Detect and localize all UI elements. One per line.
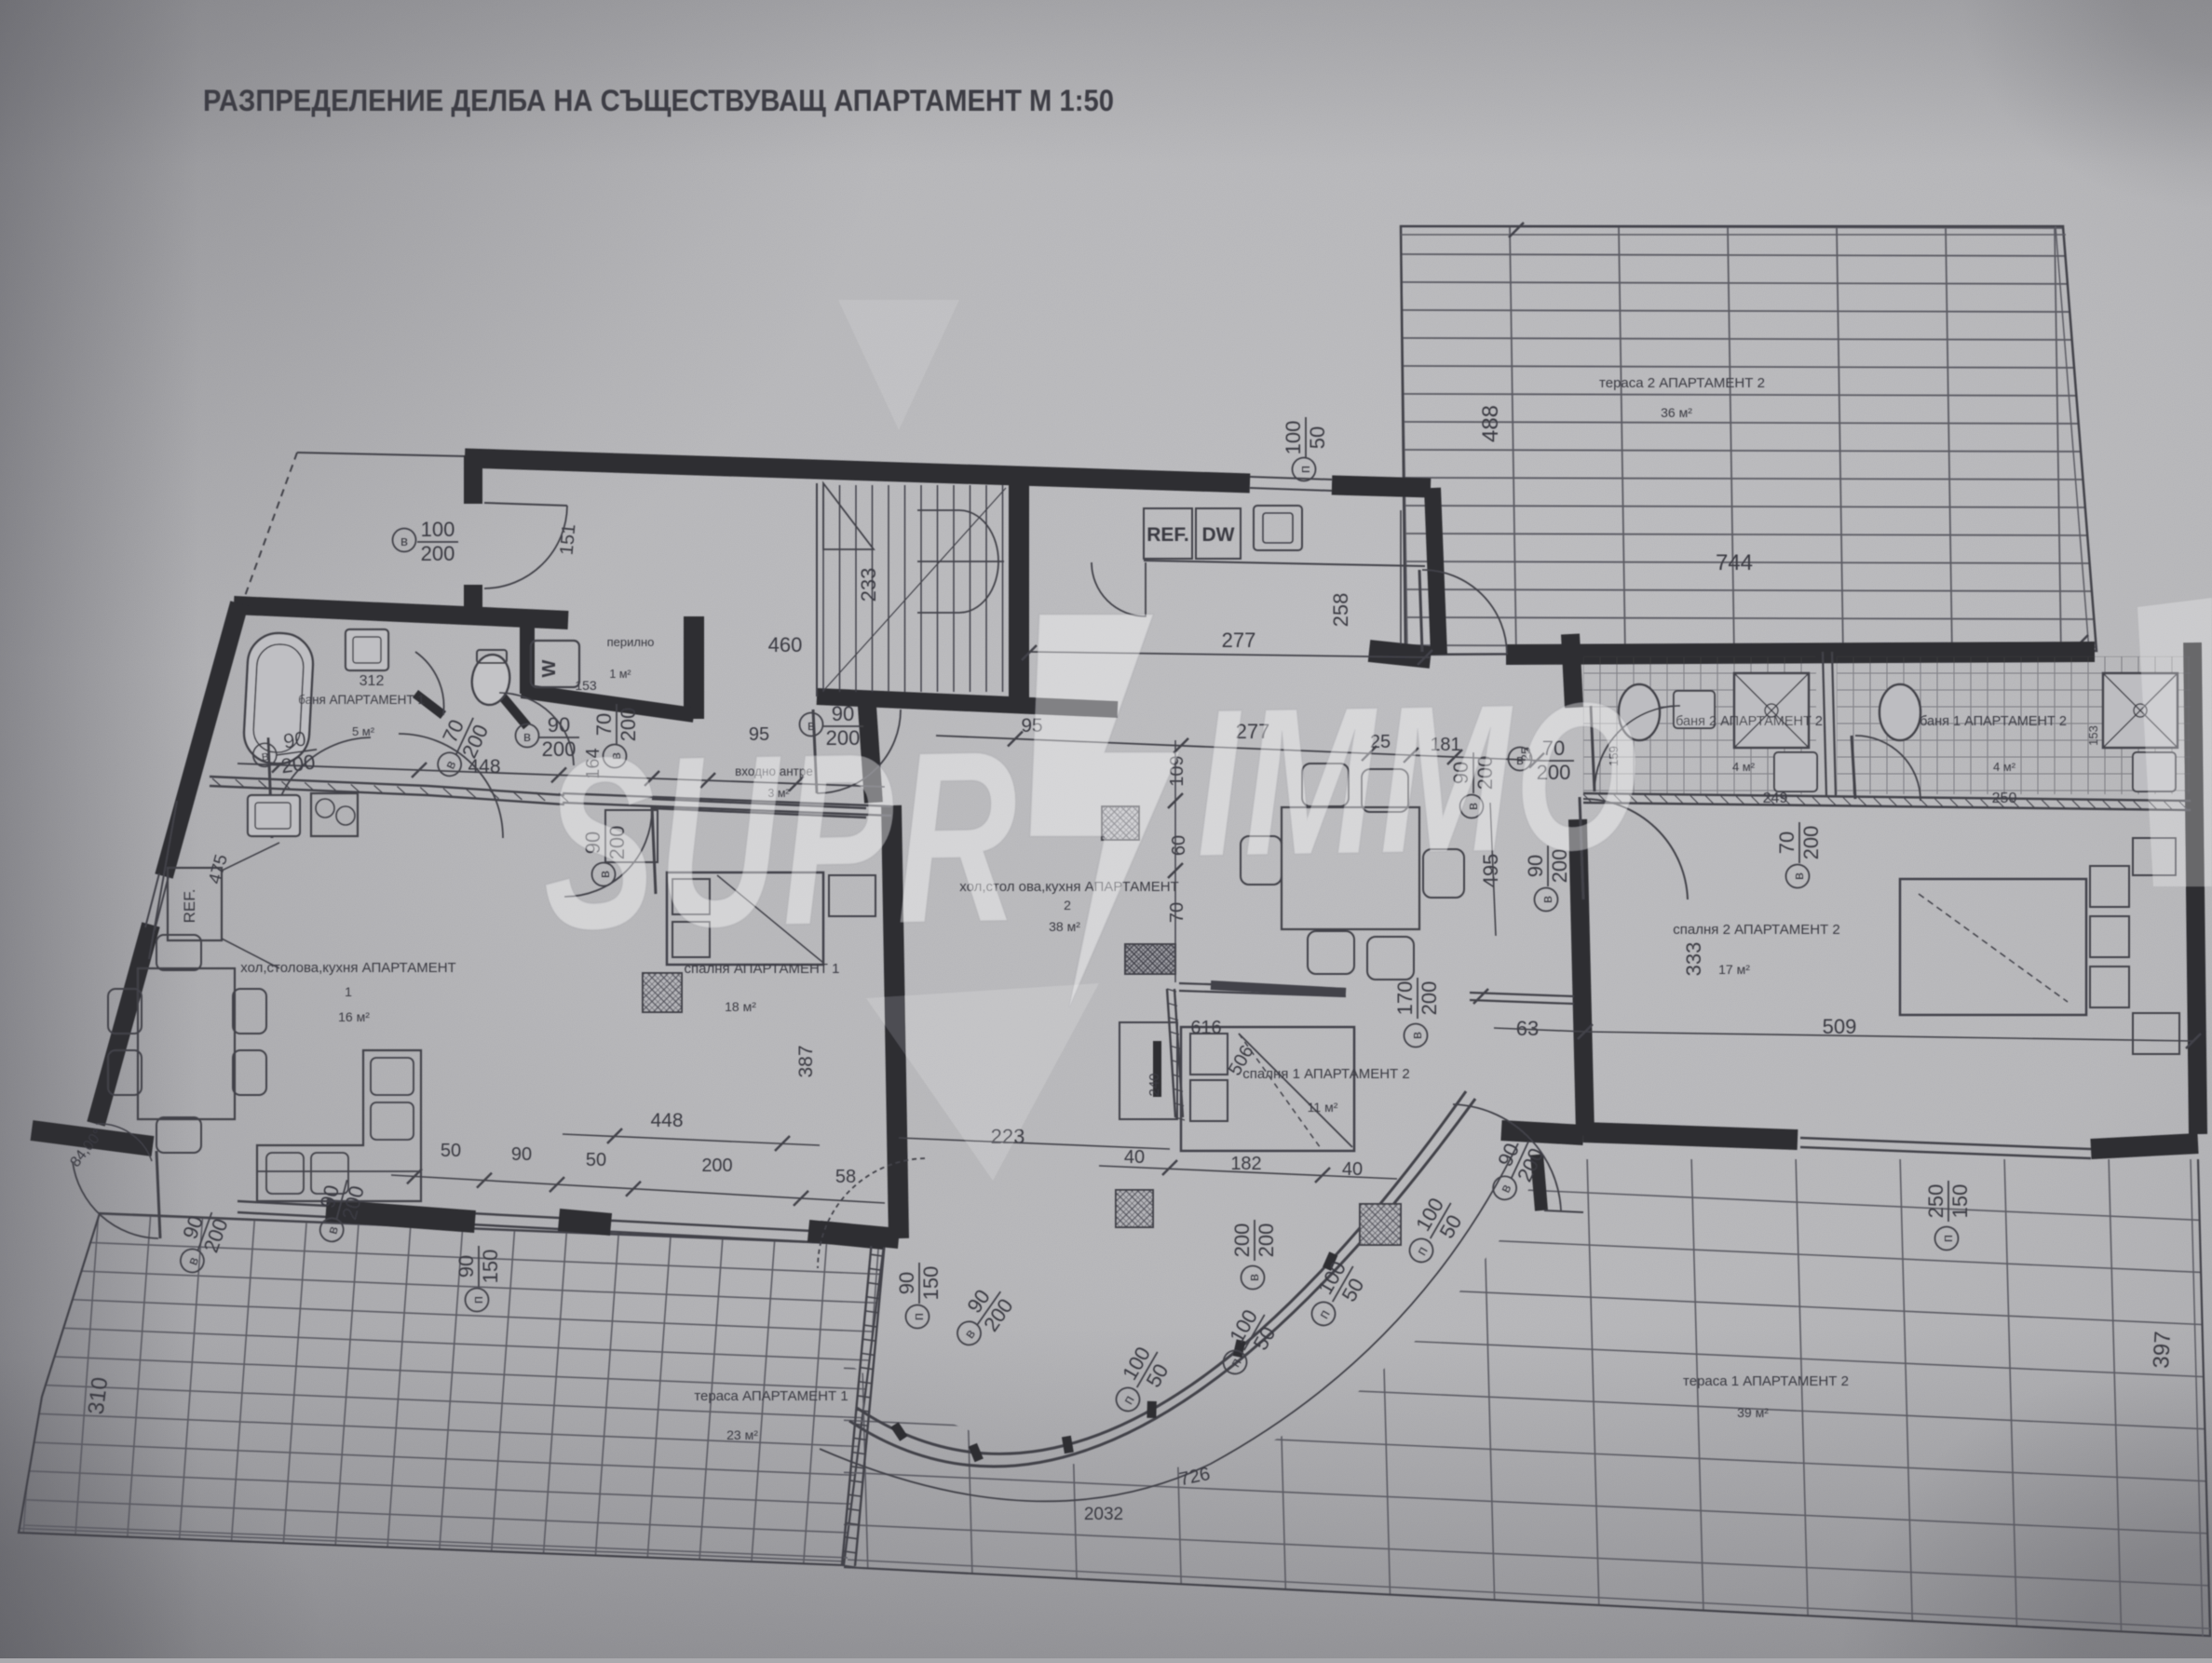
svg-text:100: 100 (1282, 421, 1305, 455)
svg-text:хол,столова,кухня АПАРТАМЕНТ: хол,столова,кухня АПАРТАМЕНТ (240, 960, 455, 976)
svg-text:W: W (539, 659, 560, 677)
svg-text:4 м²: 4 м² (1993, 760, 2016, 774)
svg-text:200: 200 (1255, 1224, 1278, 1258)
svg-text:460: 460 (768, 633, 803, 656)
svg-text:150: 150 (919, 1266, 943, 1301)
svg-text:70: 70 (1775, 831, 1798, 854)
svg-text:в: в (400, 534, 408, 549)
svg-text:1: 1 (345, 984, 352, 999)
svg-text:спалня 1 АПАРТАМЕНТ 2: спалня 1 АПАРТАМЕНТ 2 (1242, 1066, 1409, 1082)
svg-text:IMMO: IMMO (1194, 657, 1643, 899)
svg-text:в: в (1246, 1274, 1262, 1281)
svg-text:488: 488 (1478, 405, 1503, 442)
svg-text:в: в (1540, 896, 1555, 903)
svg-text:387: 387 (795, 1045, 817, 1077)
svg-text:397: 397 (2149, 1331, 2176, 1369)
svg-text:170: 170 (1393, 981, 1417, 1016)
svg-text:п: п (1940, 1235, 1956, 1242)
svg-text:200: 200 (1230, 1224, 1254, 1258)
svg-text:4 м²: 4 м² (1732, 760, 1756, 774)
svg-text:277: 277 (1222, 629, 1256, 652)
svg-text:16 м²: 16 м² (338, 1009, 370, 1024)
svg-text:153: 153 (575, 678, 597, 693)
svg-text:баня АПАРТАМЕНТ 1: баня АПАРТАМЕНТ 1 (298, 693, 425, 707)
svg-text:50: 50 (586, 1150, 606, 1170)
svg-text:38 м²: 38 м² (1049, 919, 1080, 934)
svg-text:616: 616 (1190, 1018, 1221, 1038)
svg-text:в: в (1409, 1032, 1425, 1039)
svg-text:150: 150 (479, 1250, 502, 1284)
svg-text:баня 1 АПАРТАМЕНТ 2: баня 1 АПАРТАМЕНТ 2 (1920, 714, 2067, 729)
svg-text:90: 90 (282, 727, 308, 753)
svg-text:2032: 2032 (1084, 1505, 1123, 1524)
svg-text:90: 90 (511, 1144, 532, 1165)
svg-text:448: 448 (650, 1110, 683, 1131)
svg-text:39 м²: 39 м² (1737, 1405, 1769, 1420)
svg-text:250: 250 (1924, 1184, 1947, 1219)
svg-text:258: 258 (1329, 593, 1352, 628)
svg-text:50: 50 (1306, 426, 1329, 449)
svg-text:153: 153 (2086, 725, 2100, 746)
svg-text:200: 200 (279, 750, 317, 777)
svg-text:200: 200 (701, 1156, 732, 1176)
svg-text:333: 333 (1682, 942, 1705, 977)
svg-text:2: 2 (1064, 898, 1071, 913)
svg-text:18 м²: 18 м² (725, 999, 756, 1014)
svg-text:в: в (523, 729, 531, 745)
svg-text:РАЗПРЕДЕЛЕНИЕ ДЕЛБА НА СЪЩЕСТВ: РАЗПРЕДЕЛЕНИЕ ДЕЛБА НА СЪЩЕСТВУВАЩ АПАРТ… (203, 84, 1114, 117)
svg-text:п: п (470, 1296, 486, 1304)
svg-text:249: 249 (1763, 791, 1788, 806)
svg-text:баня 2 АПАРТАМЕНТ 2: баня 2 АПАРТАМЕНТ 2 (1676, 714, 1823, 729)
svg-text:90: 90 (895, 1272, 918, 1294)
svg-text:5 м²: 5 м² (352, 724, 375, 738)
svg-text:REF.: REF. (1147, 524, 1189, 546)
svg-text:310: 310 (84, 1376, 114, 1416)
svg-text:150: 150 (1948, 1184, 1972, 1219)
svg-text:SUPR: SUPR (540, 699, 1022, 980)
svg-text:REF.: REF. (181, 889, 198, 924)
svg-text:200: 200 (1418, 981, 1441, 1016)
svg-text:23 м²: 23 м² (726, 1427, 758, 1442)
svg-text:17 м²: 17 м² (1718, 962, 1750, 977)
svg-text:200: 200 (421, 542, 455, 565)
svg-text:200: 200 (1799, 826, 1823, 860)
svg-text:DW: DW (1202, 524, 1235, 546)
svg-text:тераса 2 АПАРТАМЕНТ 2: тераса 2 АПАРТАМЕНТ 2 (1599, 375, 1765, 391)
svg-text:тераса 1 АПАРТАМЕНТ 2: тераса 1 АПАРТАМЕНТ 2 (1683, 1373, 1849, 1389)
svg-text:233: 233 (857, 568, 880, 602)
svg-text:в: в (1791, 872, 1807, 880)
svg-text:58: 58 (835, 1167, 856, 1187)
svg-text:312: 312 (360, 673, 385, 689)
svg-text:тераса АПАРТАМЕНТ 1: тераса АПАРТАМЕНТ 1 (694, 1388, 848, 1404)
svg-text:40: 40 (1124, 1147, 1145, 1168)
svg-text:60: 60 (1169, 835, 1189, 856)
svg-text:250: 250 (1992, 791, 2017, 806)
svg-text:90: 90 (455, 1255, 478, 1278)
svg-text:50: 50 (441, 1141, 461, 1161)
svg-text:п: п (1297, 466, 1313, 473)
svg-text:п: п (911, 1313, 927, 1320)
svg-text:240: 240 (1147, 1073, 1162, 1096)
svg-text:70: 70 (1167, 902, 1187, 923)
svg-text:744: 744 (1716, 550, 1753, 575)
svg-text:1 м²: 1 м² (609, 668, 631, 681)
svg-text:11 м²: 11 м² (1308, 1100, 1338, 1115)
svg-text:перилно: перилно (607, 635, 655, 649)
svg-text:36 м²: 36 м² (1661, 405, 1692, 420)
svg-text:спалня 2 АПАРТАМЕНТ 2: спалня 2 АПАРТАМЕНТ 2 (1673, 922, 1839, 938)
svg-text:100: 100 (421, 518, 455, 541)
